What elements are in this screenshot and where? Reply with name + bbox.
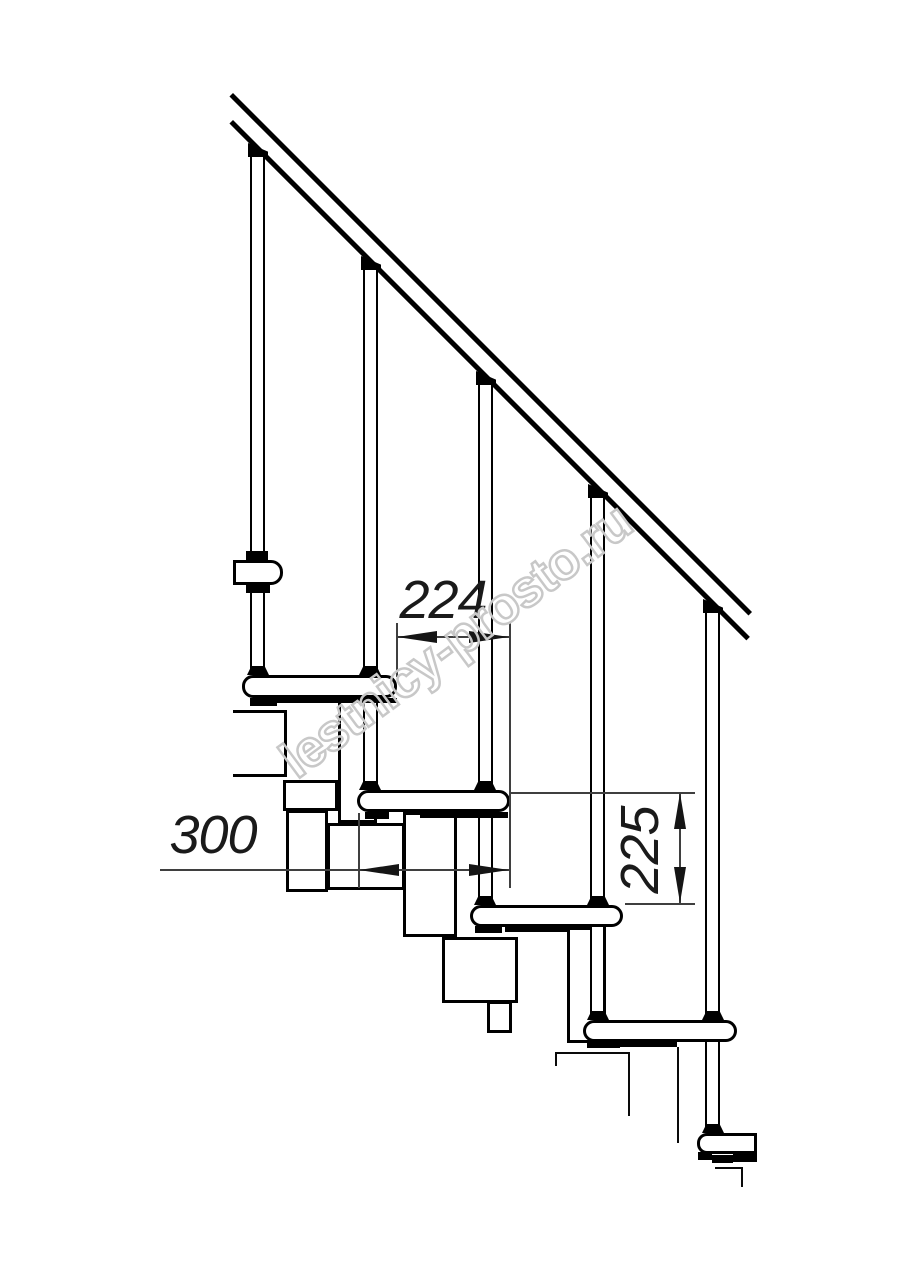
lower-floor-bracket [697,1133,757,1154]
bracket-tab-1 [698,1152,712,1160]
dim-224-ext-right [509,623,511,888]
tread-4-tab [587,1042,620,1048]
support-column-2 [403,812,457,937]
dim-300-arrow-right [469,864,509,876]
cutaway-line-1 [555,1052,630,1054]
bracket-tab-3 [733,1152,757,1162]
tread-3 [470,905,623,927]
dim-300-ext-left [358,813,360,888]
dim-225-ext-top [511,792,695,794]
dim-300-line [160,869,509,871]
dim-225-label: 225 [615,805,665,895]
tread-3-shadow [505,927,567,932]
cutaway-line-6 [741,1167,743,1187]
tread-2 [357,790,510,812]
dim-225-arrow-down [674,867,686,903]
upper-rail-bracket [233,560,283,585]
bracket-tab-2 [712,1155,733,1163]
tread-4 [583,1020,737,1042]
upper-bracket-clamp-bottom [246,585,270,593]
tread-1-tab [250,698,277,706]
tread-3-tab [475,926,502,933]
support-module-0-body [286,810,328,892]
staircase-technical-drawing: 224 300 225 lestnicy-prosto.ru [0,0,914,1280]
cutaway-line-4 [677,1047,679,1143]
dim-300-arrow-left [359,864,399,876]
baluster-1 [250,157,265,675]
support-module-2-lower [487,1001,512,1033]
tread-4-shadow [620,1042,677,1047]
cutaway-line-2 [555,1052,557,1066]
upper-bracket-clamp-top [246,551,268,560]
tread-2-tab [365,812,389,819]
tread-2-shadow [420,812,508,818]
baluster-5 [705,613,720,1133]
cutaway-line-5 [715,1167,743,1169]
dim-225-arrow-up [674,793,686,829]
support-module-2 [442,937,518,1003]
support-module-1 [327,823,405,890]
dim-225-ext-bottom [625,903,695,905]
cutaway-line-3 [628,1052,630,1116]
